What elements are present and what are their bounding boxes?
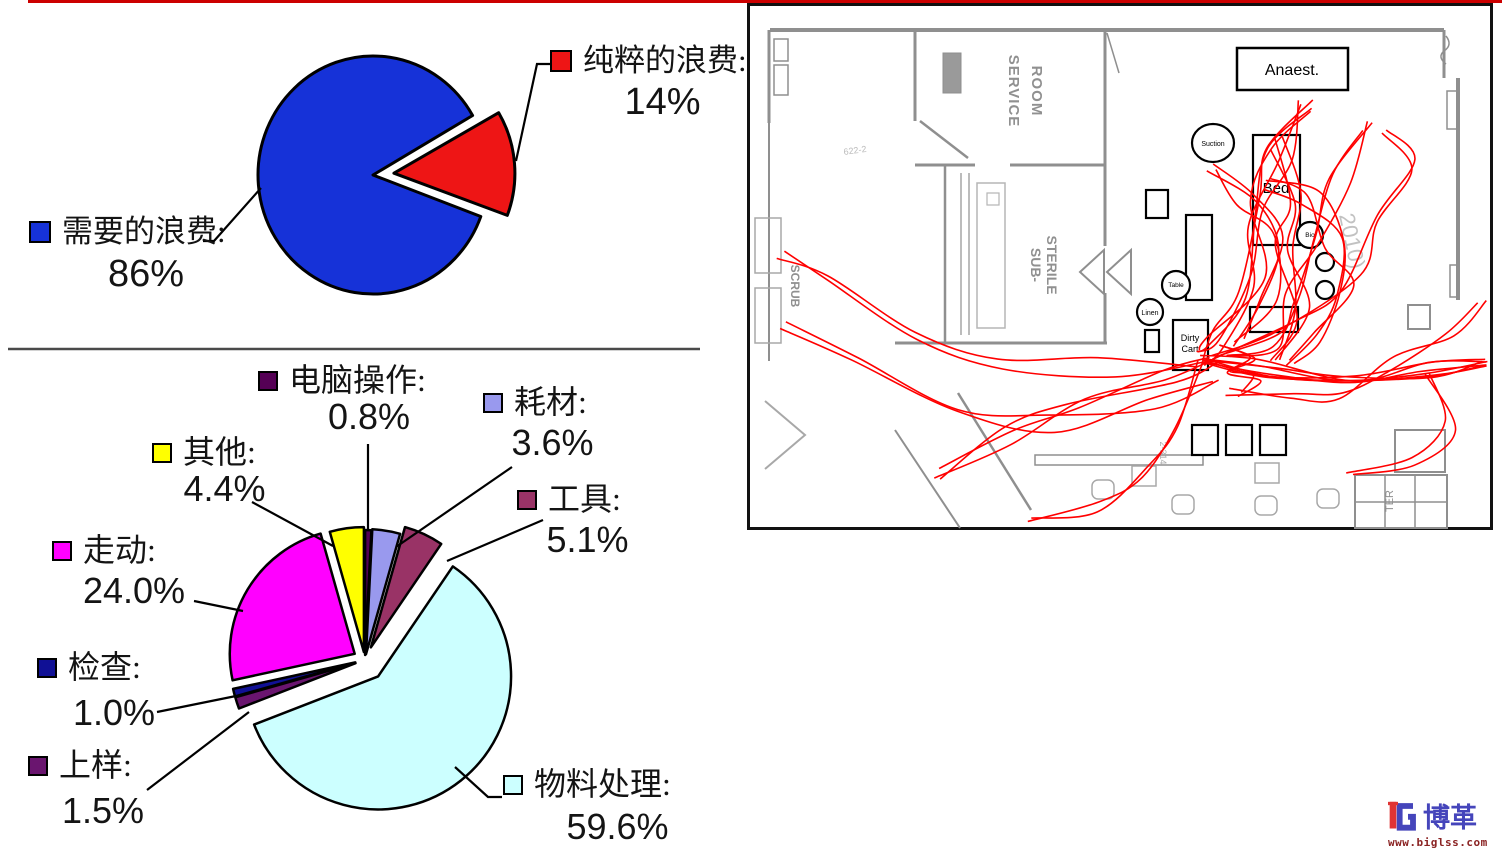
- legend-swatch: [37, 658, 57, 678]
- callout-consumable: [396, 467, 512, 547]
- equipment-square: [1260, 425, 1286, 455]
- waste-pie: [258, 56, 515, 294]
- legend-value: 59.6%: [550, 808, 685, 846]
- sub-sterile-label-line1: SUB-: [1028, 248, 1044, 283]
- legend-label: 电脑操作:: [289, 363, 426, 398]
- legend-item-material: 物料处理:: [503, 767, 671, 802]
- legend-label: 上样:: [59, 748, 132, 783]
- legend-item-loading: 上样:: [28, 748, 132, 783]
- legend-swatch: [52, 541, 72, 561]
- legend-item-walking: 走动:: [52, 533, 156, 568]
- service-room-label-line2: ROOM: [1028, 66, 1045, 117]
- legend-item-pure-waste: 纯粹的浪费:: [550, 44, 747, 78]
- legend-value: 4.4%: [172, 470, 277, 508]
- suction-label: Suction: [1201, 141, 1224, 148]
- legend-label: 纯粹的浪费:: [583, 44, 747, 78]
- legend-value: 3.6%: [500, 424, 605, 462]
- legend-swatch: [503, 775, 523, 795]
- service-room-label-line1: SERVICE: [1005, 55, 1022, 128]
- anaest-label: Anaest.: [1265, 62, 1319, 79]
- legend-item-computer: 电脑操作:: [258, 363, 426, 398]
- legend-label: 走动:: [83, 533, 156, 568]
- table-label: Table: [1168, 282, 1184, 289]
- legend-swatch: [29, 221, 51, 243]
- activity-pie: [230, 527, 511, 809]
- dirty-cart-label-line2: Cart: [1181, 344, 1199, 354]
- legend-label: 需要的浪费:: [62, 215, 226, 249]
- legend-swatch: [550, 50, 572, 72]
- logo-icon: [1388, 798, 1418, 834]
- legend-value: 1.5%: [48, 792, 158, 830]
- legend-item-inspect: 检查:: [37, 650, 141, 685]
- logo-url: www.biglss.com: [1388, 836, 1500, 849]
- legend-swatch: [28, 756, 48, 776]
- linen-label: Linen: [1141, 310, 1158, 317]
- legend-value: 24.0%: [70, 572, 198, 610]
- equipment-square: [1192, 425, 1218, 455]
- legend-swatch: [483, 393, 503, 413]
- legend-item-needed-waste: 需要的浪费:: [29, 215, 226, 249]
- legend-label: 检查:: [68, 650, 141, 685]
- dirty-cart-label-line1: Dirty: [1181, 333, 1200, 343]
- legend-item-other: 其他:: [152, 435, 256, 470]
- legend-label: 工具:: [548, 482, 621, 517]
- legend-swatch: [517, 490, 537, 510]
- legend-value: 0.8%: [289, 398, 449, 436]
- legend-label: 物料处理:: [534, 767, 671, 802]
- equipment-rect: [1146, 190, 1168, 218]
- legend-swatch: [258, 371, 278, 391]
- company-logo: 博革 www.biglss.com: [1388, 796, 1500, 849]
- equipment-square: [1226, 425, 1252, 455]
- callout-tool: [447, 520, 543, 561]
- legend-item-consumable: 耗材:: [483, 385, 587, 420]
- legend-label: 耗材:: [514, 385, 587, 420]
- callout-pure-waste: [516, 64, 550, 161]
- legend-value: 14%: [580, 83, 745, 123]
- legend-value: 86%: [62, 255, 230, 295]
- sub-sterile-label-line2: STERILE: [1044, 235, 1060, 294]
- scrub-label: SCRUB: [788, 265, 802, 308]
- legend-value: 1.0%: [58, 694, 170, 732]
- legend-swatch: [152, 443, 172, 463]
- legend-value: 5.1%: [535, 521, 640, 559]
- callout-walking: [194, 601, 243, 611]
- equipment-rect: [1145, 330, 1159, 352]
- legend-item-tool: 工具:: [517, 482, 621, 517]
- logo-brand-text: 博革: [1423, 796, 1477, 835]
- shelf-label: TER: [1384, 490, 1396, 512]
- small-circle: [1316, 281, 1334, 299]
- legend-label: 其他:: [183, 435, 256, 470]
- floor-plan-spaghetti-diagram: SERVICE ROOM SUB- STERILE SCRUB TER 2-31…: [747, 3, 1493, 530]
